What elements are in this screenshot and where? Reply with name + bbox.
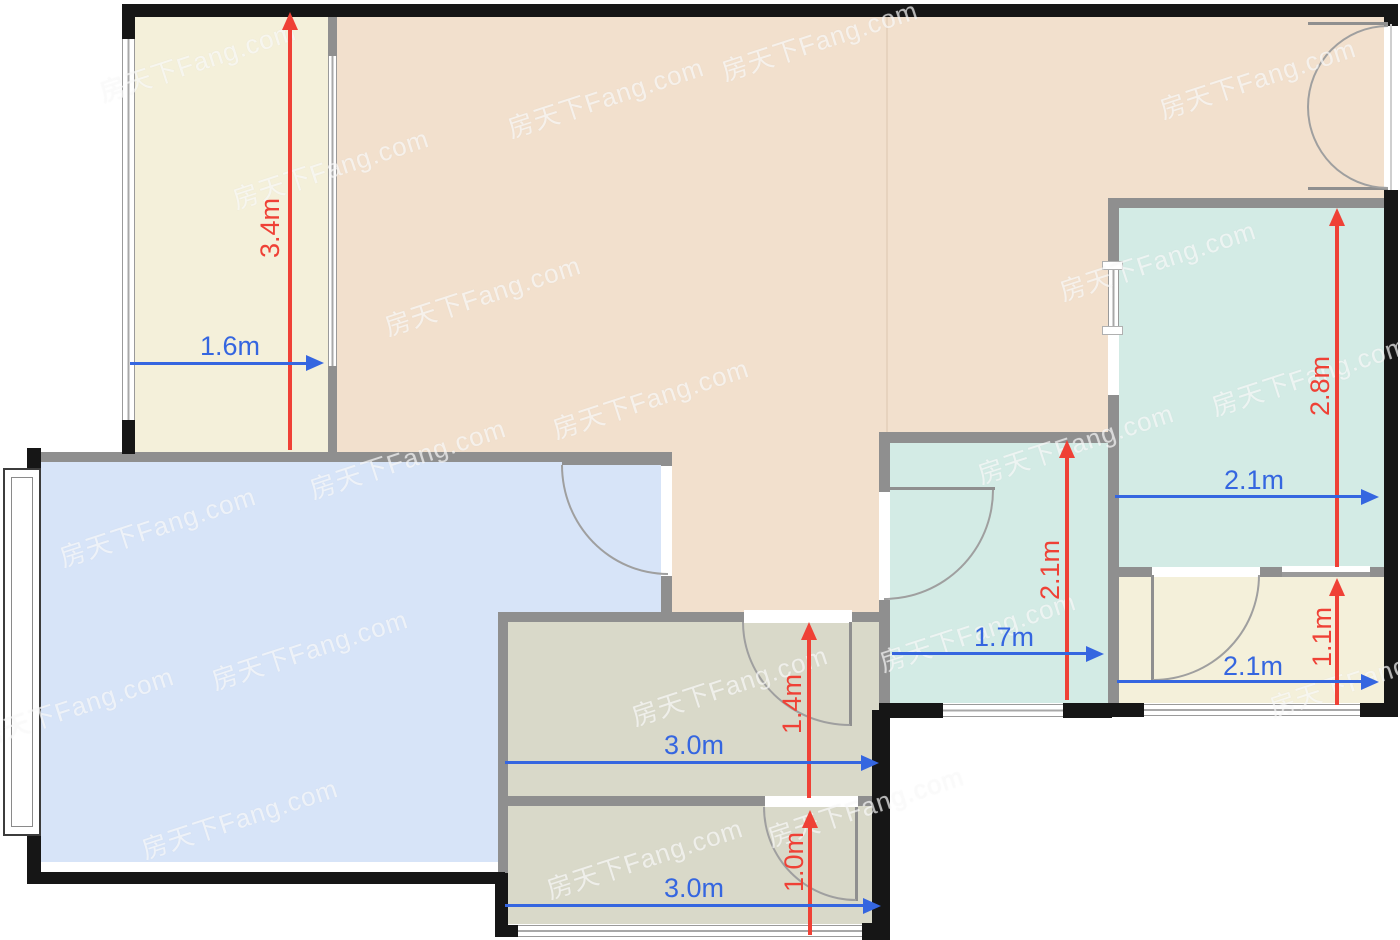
dim-label-bottom-width: 3.0m <box>644 873 744 903</box>
watermark-text: 房天下Fang.com <box>716 0 922 89</box>
watermark-text: 房天下Fang.com <box>0 656 178 754</box>
watermark-text: 房天下Fang.com <box>972 393 1178 491</box>
dim-label-mid-width: 3.0m <box>644 730 744 760</box>
watermark-text: 房天下Fang.com <box>54 476 260 574</box>
dim-line-balcony-width <box>130 362 308 365</box>
dim-line-bath-width <box>892 652 1088 655</box>
dim-arrowhead <box>1361 489 1379 505</box>
dim-label-small-width: 2.1m <box>1203 651 1303 681</box>
watermark-text: 房天下Fang.com <box>304 408 510 506</box>
watermark-text: 房天下Fang.com <box>547 348 753 446</box>
dim-line-bottom-width <box>505 904 865 907</box>
dim-arrowhead <box>1329 578 1345 596</box>
dim-line-balcony-height <box>288 30 292 450</box>
watermark-text: 房天下Fang.com <box>1206 325 1400 423</box>
dim-arrowhead <box>1329 208 1345 226</box>
dim-line-mid-width <box>505 761 863 764</box>
dim-arrowhead <box>306 355 324 371</box>
dim-label-bottom-height: 1.0m <box>779 822 809 902</box>
watermark-text: 房天下Fang.com <box>1054 210 1260 308</box>
floorplan-canvas: 房天下Fang.com房天下Fang.com房天下Fang.com房天下Fang… <box>0 0 1400 940</box>
dim-label-bedroom-width: 2.1m <box>1204 465 1304 495</box>
watermark-layer: 房天下Fang.com房天下Fang.com房天下Fang.com房天下Fang… <box>0 0 1400 940</box>
watermark-text: 房天下Fang.com <box>502 47 708 145</box>
dim-label-balcony-width: 1.6m <box>180 331 280 361</box>
dim-label-mid-height: 1.4m <box>777 664 807 744</box>
dim-line-bath-height <box>1065 458 1069 700</box>
dim-arrowhead <box>863 898 881 914</box>
dim-arrowhead <box>1361 674 1379 690</box>
dim-arrowhead <box>1086 646 1104 662</box>
dim-arrowhead <box>861 755 879 771</box>
watermark-text: 房天下Fang.com <box>206 599 412 697</box>
watermark-text: 房天下Fang.com <box>94 11 300 109</box>
dim-line-mid-height <box>807 640 811 798</box>
dim-label-bedroom-height: 2.8m <box>1305 346 1335 426</box>
dim-label-small-height: 1.1m <box>1307 597 1337 677</box>
dim-arrowhead <box>282 12 298 30</box>
dim-label-bath-height: 2.1m <box>1035 530 1065 610</box>
dim-label-bath-width: 1.7m <box>954 622 1054 652</box>
dim-label-balcony-height: 3.4m <box>255 188 285 268</box>
dim-line-bedroom-height <box>1335 226 1339 567</box>
watermark-text: 房天下Fang.com <box>136 768 342 866</box>
watermark-text: 房天下Fang.com <box>379 245 585 343</box>
dim-arrowhead <box>1059 440 1075 458</box>
dim-line-bedroom-width <box>1115 495 1363 498</box>
watermark-text: 房天下Fang.com <box>1154 28 1360 126</box>
dim-arrowhead <box>801 622 817 640</box>
